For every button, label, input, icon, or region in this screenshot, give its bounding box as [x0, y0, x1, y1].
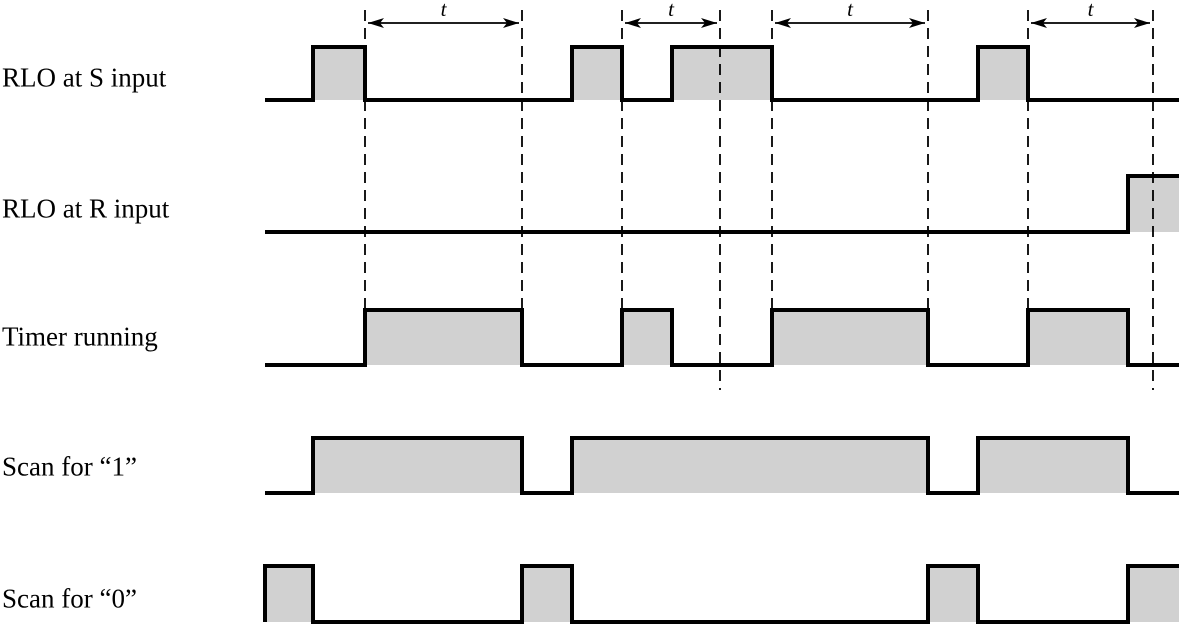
pulse-fill-scan-for-1 — [978, 438, 1128, 493]
pulse-fill-timer-running — [365, 310, 522, 365]
label-rlo-s-input: RLO at S input — [2, 65, 166, 92]
time-label: t — [441, 0, 448, 21]
timing-diagram: tttt RLO at S input RLO at R input Timer… — [0, 0, 1179, 625]
pulse-fill-scan-for-0 — [928, 566, 978, 622]
pulse-fill-scan-for-1 — [572, 438, 928, 493]
pulse-fill-rlo-r-input — [1128, 176, 1179, 232]
time-label: t — [668, 0, 675, 21]
label-rlo-r-input: RLO at R input — [2, 196, 169, 223]
pulse-fill-scan-for-1 — [313, 438, 522, 493]
pulse-fill-scan-for-0 — [522, 566, 572, 622]
pulse-fill-scan-for-0 — [1128, 566, 1179, 622]
label-timer-running: Timer running — [2, 324, 158, 351]
pulse-fill-rlo-s-input — [313, 47, 365, 100]
label-scan-for-1: Scan for “1” — [2, 454, 137, 481]
pulse-fill-timer-running — [622, 310, 672, 365]
time-label: t — [847, 0, 854, 21]
pulse-fill-rlo-s-input — [672, 47, 772, 100]
waveform-canvas: tttt — [0, 0, 1179, 625]
waveform-scan-for-0 — [265, 566, 1179, 622]
time-label: t — [1088, 0, 1095, 21]
label-scan-for-0: Scan for “0” — [2, 586, 137, 613]
pulse-fill-timer-running — [1028, 310, 1128, 365]
pulse-fill-scan-for-0 — [265, 566, 313, 622]
pulse-fill-rlo-s-input — [978, 47, 1028, 100]
waveform-rlo-r-input — [265, 176, 1179, 232]
pulse-fill-rlo-s-input — [572, 47, 622, 100]
pulse-fill-timer-running — [772, 310, 928, 365]
